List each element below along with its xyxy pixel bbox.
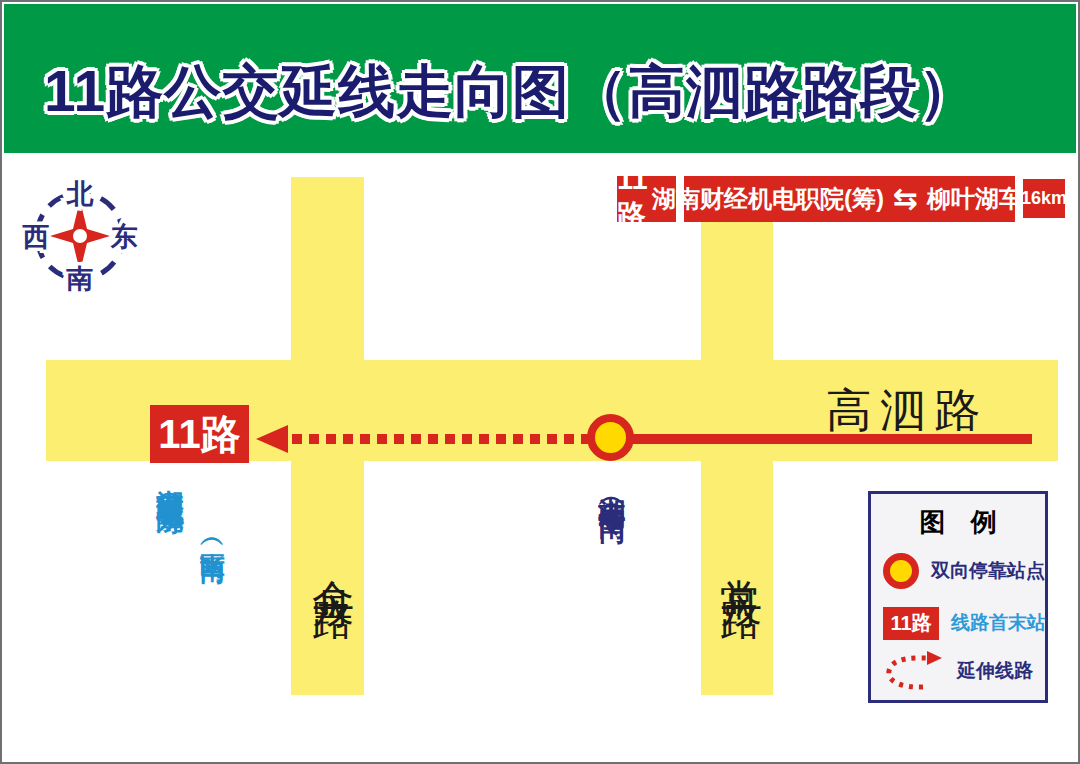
route-terminals-bar: 湖南财经机电职院(筹) ⇆ 柳叶湖车站	[684, 176, 1015, 222]
legend-label-station: 双向停靠站点	[931, 558, 1045, 584]
dotted-arrow-icon	[883, 647, 945, 695]
station-marker	[587, 414, 634, 461]
legend-item-terminal: 11路 线路首末站	[871, 606, 1045, 640]
route-distance-badge: 16km	[1023, 179, 1065, 218]
page-title: 11路公交延线走向图（高泗路路段）	[44, 54, 976, 131]
legend-item-extension: 延伸线路	[871, 646, 1045, 696]
bus-route-map-canvas: 11路公交延线走向图（高泗路路段） 高泗路 金丹路 常丹路 北 南 西 东 11…	[0, 0, 1080, 764]
station-marker-icon	[883, 553, 919, 589]
legend-item-station: 双向停靠站点	[871, 552, 1045, 590]
compass-label-north: 北	[66, 179, 94, 209]
legend-box: 图 例 双向停靠站点 11路 线路首末站 延伸线路	[868, 491, 1048, 703]
route-line-extension-dotted	[292, 434, 588, 444]
compass-rose: 北 南 西 东	[10, 164, 150, 310]
header-banner: 11路公交延线走向图（高泗路路段）	[4, 4, 1076, 153]
two-way-arrow-icon: ⇆	[893, 184, 918, 214]
compass-star-icon	[50, 200, 110, 272]
legend-label-extension: 延伸线路	[957, 658, 1033, 684]
compass-label-west: 西	[22, 222, 50, 252]
extension-arrowhead-icon	[256, 425, 288, 453]
road-changdan	[701, 222, 773, 695]
route-terminal-badge: 11路	[150, 405, 249, 463]
legend-title: 图 例	[871, 505, 1045, 540]
road-label-jindan: 金丹路	[305, 546, 361, 576]
station-name-label: 湖南幼专（南门）	[594, 476, 630, 500]
terminal-gate-label: （南区南门）	[197, 530, 230, 542]
terminal-name-label: 湖南财经机电职院（筹）	[152, 468, 188, 490]
terminal-a-label: 湖南财经机电职院(筹)	[652, 183, 884, 215]
compass-label-east: 东	[110, 222, 138, 252]
road-label-changdan: 常丹路	[713, 546, 769, 576]
road-label-gaosi: 高泗路	[826, 380, 988, 442]
legend-label-terminal: 线路首末站	[951, 610, 1046, 636]
route-badge-icon: 11路	[883, 607, 939, 640]
compass-label-south: 南	[66, 264, 94, 294]
route-line-solid	[630, 434, 1032, 444]
